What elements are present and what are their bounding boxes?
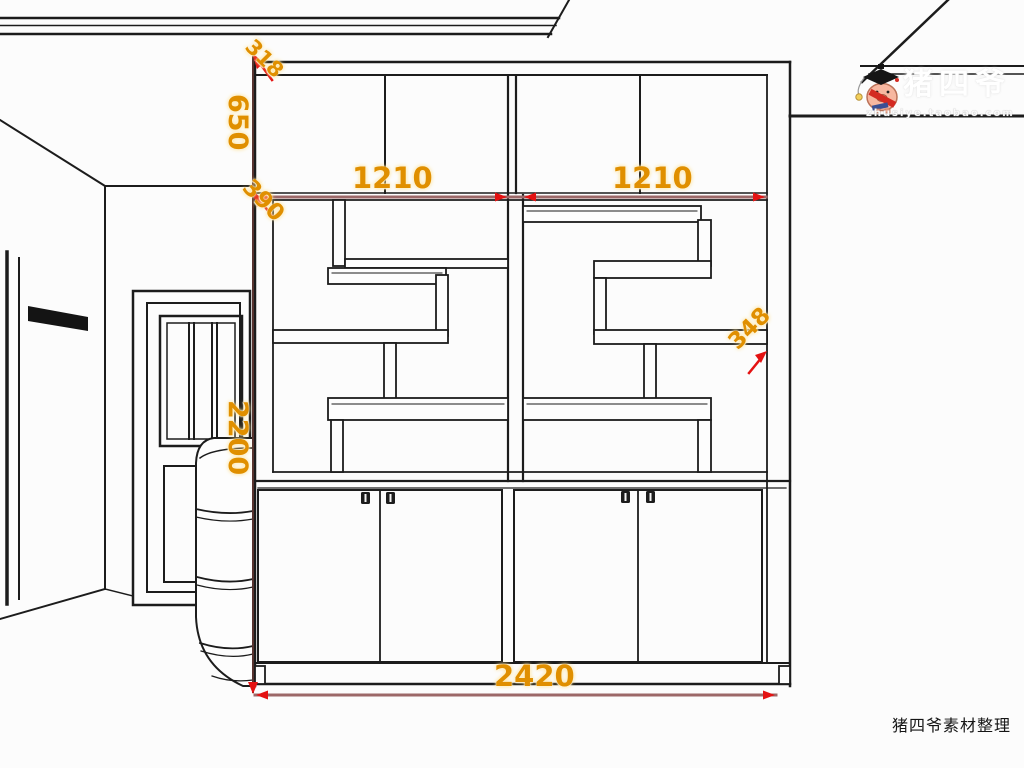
watermark-url-text: zhusiye.taobao.com [866,109,1015,119]
shelf-divider [331,420,343,472]
shelf-divider [644,344,656,402]
pig-mascot-logo [856,64,899,113]
graduation-cap-icon [863,69,899,85]
display-shelf [345,259,508,268]
door-jamb-left [7,252,88,604]
display-shelf-section [255,195,790,488]
corner-shelf-unit [196,438,253,686]
display-shelf [594,261,711,278]
display-shelf [273,330,448,343]
shelf-divider [333,200,345,266]
watermark-brand-text: 猪四爷 [903,70,1011,100]
credit-text: 猪四爷素材整理 [892,718,1011,734]
shelf-divider [698,420,711,472]
shelf-divider [698,220,711,266]
main-cabinet [255,62,790,686]
dim-label-1210-left: 1210 [352,164,433,193]
dimension-arrows [248,53,775,700]
ceiling-left [0,0,569,37]
base-cabinet [255,490,790,684]
display-shelf [523,398,711,420]
dim-label-2200: 2200 [224,400,251,475]
display-shelf [328,398,508,420]
dim-label-2420: 2420 [494,662,575,691]
display-shelf [328,268,446,284]
shelf-divider [384,343,396,404]
dim-label-1210-right: 1210 [612,164,693,193]
dim-label-650: 650 [224,94,251,150]
shelf-divider [594,278,606,334]
shelf-divider [436,275,448,336]
cad-drawing-canvas: 318 650 390 1210 1210 348 2200 2420 猪四爷 … [0,0,1024,768]
display-shelf [523,206,701,222]
